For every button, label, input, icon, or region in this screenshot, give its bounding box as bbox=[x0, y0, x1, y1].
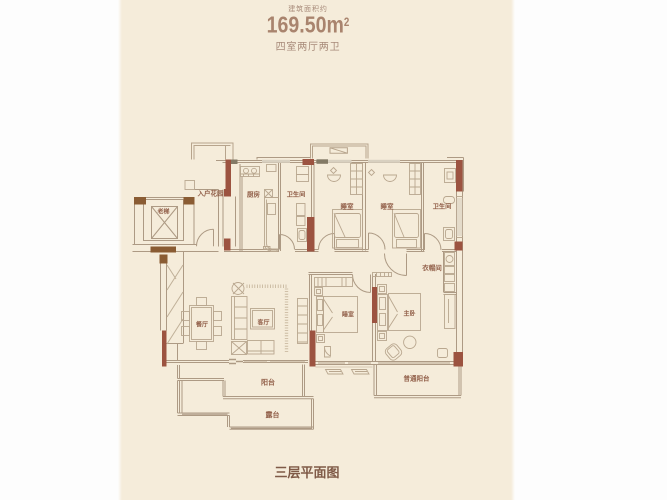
svg-text:主卧: 主卧 bbox=[403, 310, 415, 318]
svg-text:睡室: 睡室 bbox=[341, 202, 355, 211]
svg-text:入户花园: 入户花园 bbox=[197, 189, 225, 198]
svg-text:睡室: 睡室 bbox=[342, 311, 354, 319]
svg-text:老梯: 老梯 bbox=[156, 208, 169, 216]
svg-text:餐厅: 餐厅 bbox=[195, 321, 208, 329]
svg-text:厨房: 厨房 bbox=[247, 190, 261, 199]
svg-text:睡室: 睡室 bbox=[381, 202, 395, 211]
svg-text:阳台: 阳台 bbox=[261, 378, 275, 387]
svg-text:卫生间: 卫生间 bbox=[287, 191, 306, 199]
svg-text:卫生间: 卫生间 bbox=[433, 203, 452, 211]
svg-text:普通阳台: 普通阳台 bbox=[404, 374, 431, 383]
svg-text:衣帽间: 衣帽间 bbox=[422, 263, 442, 272]
svg-text:客厅: 客厅 bbox=[256, 319, 269, 327]
svg-text:露台: 露台 bbox=[266, 410, 280, 419]
